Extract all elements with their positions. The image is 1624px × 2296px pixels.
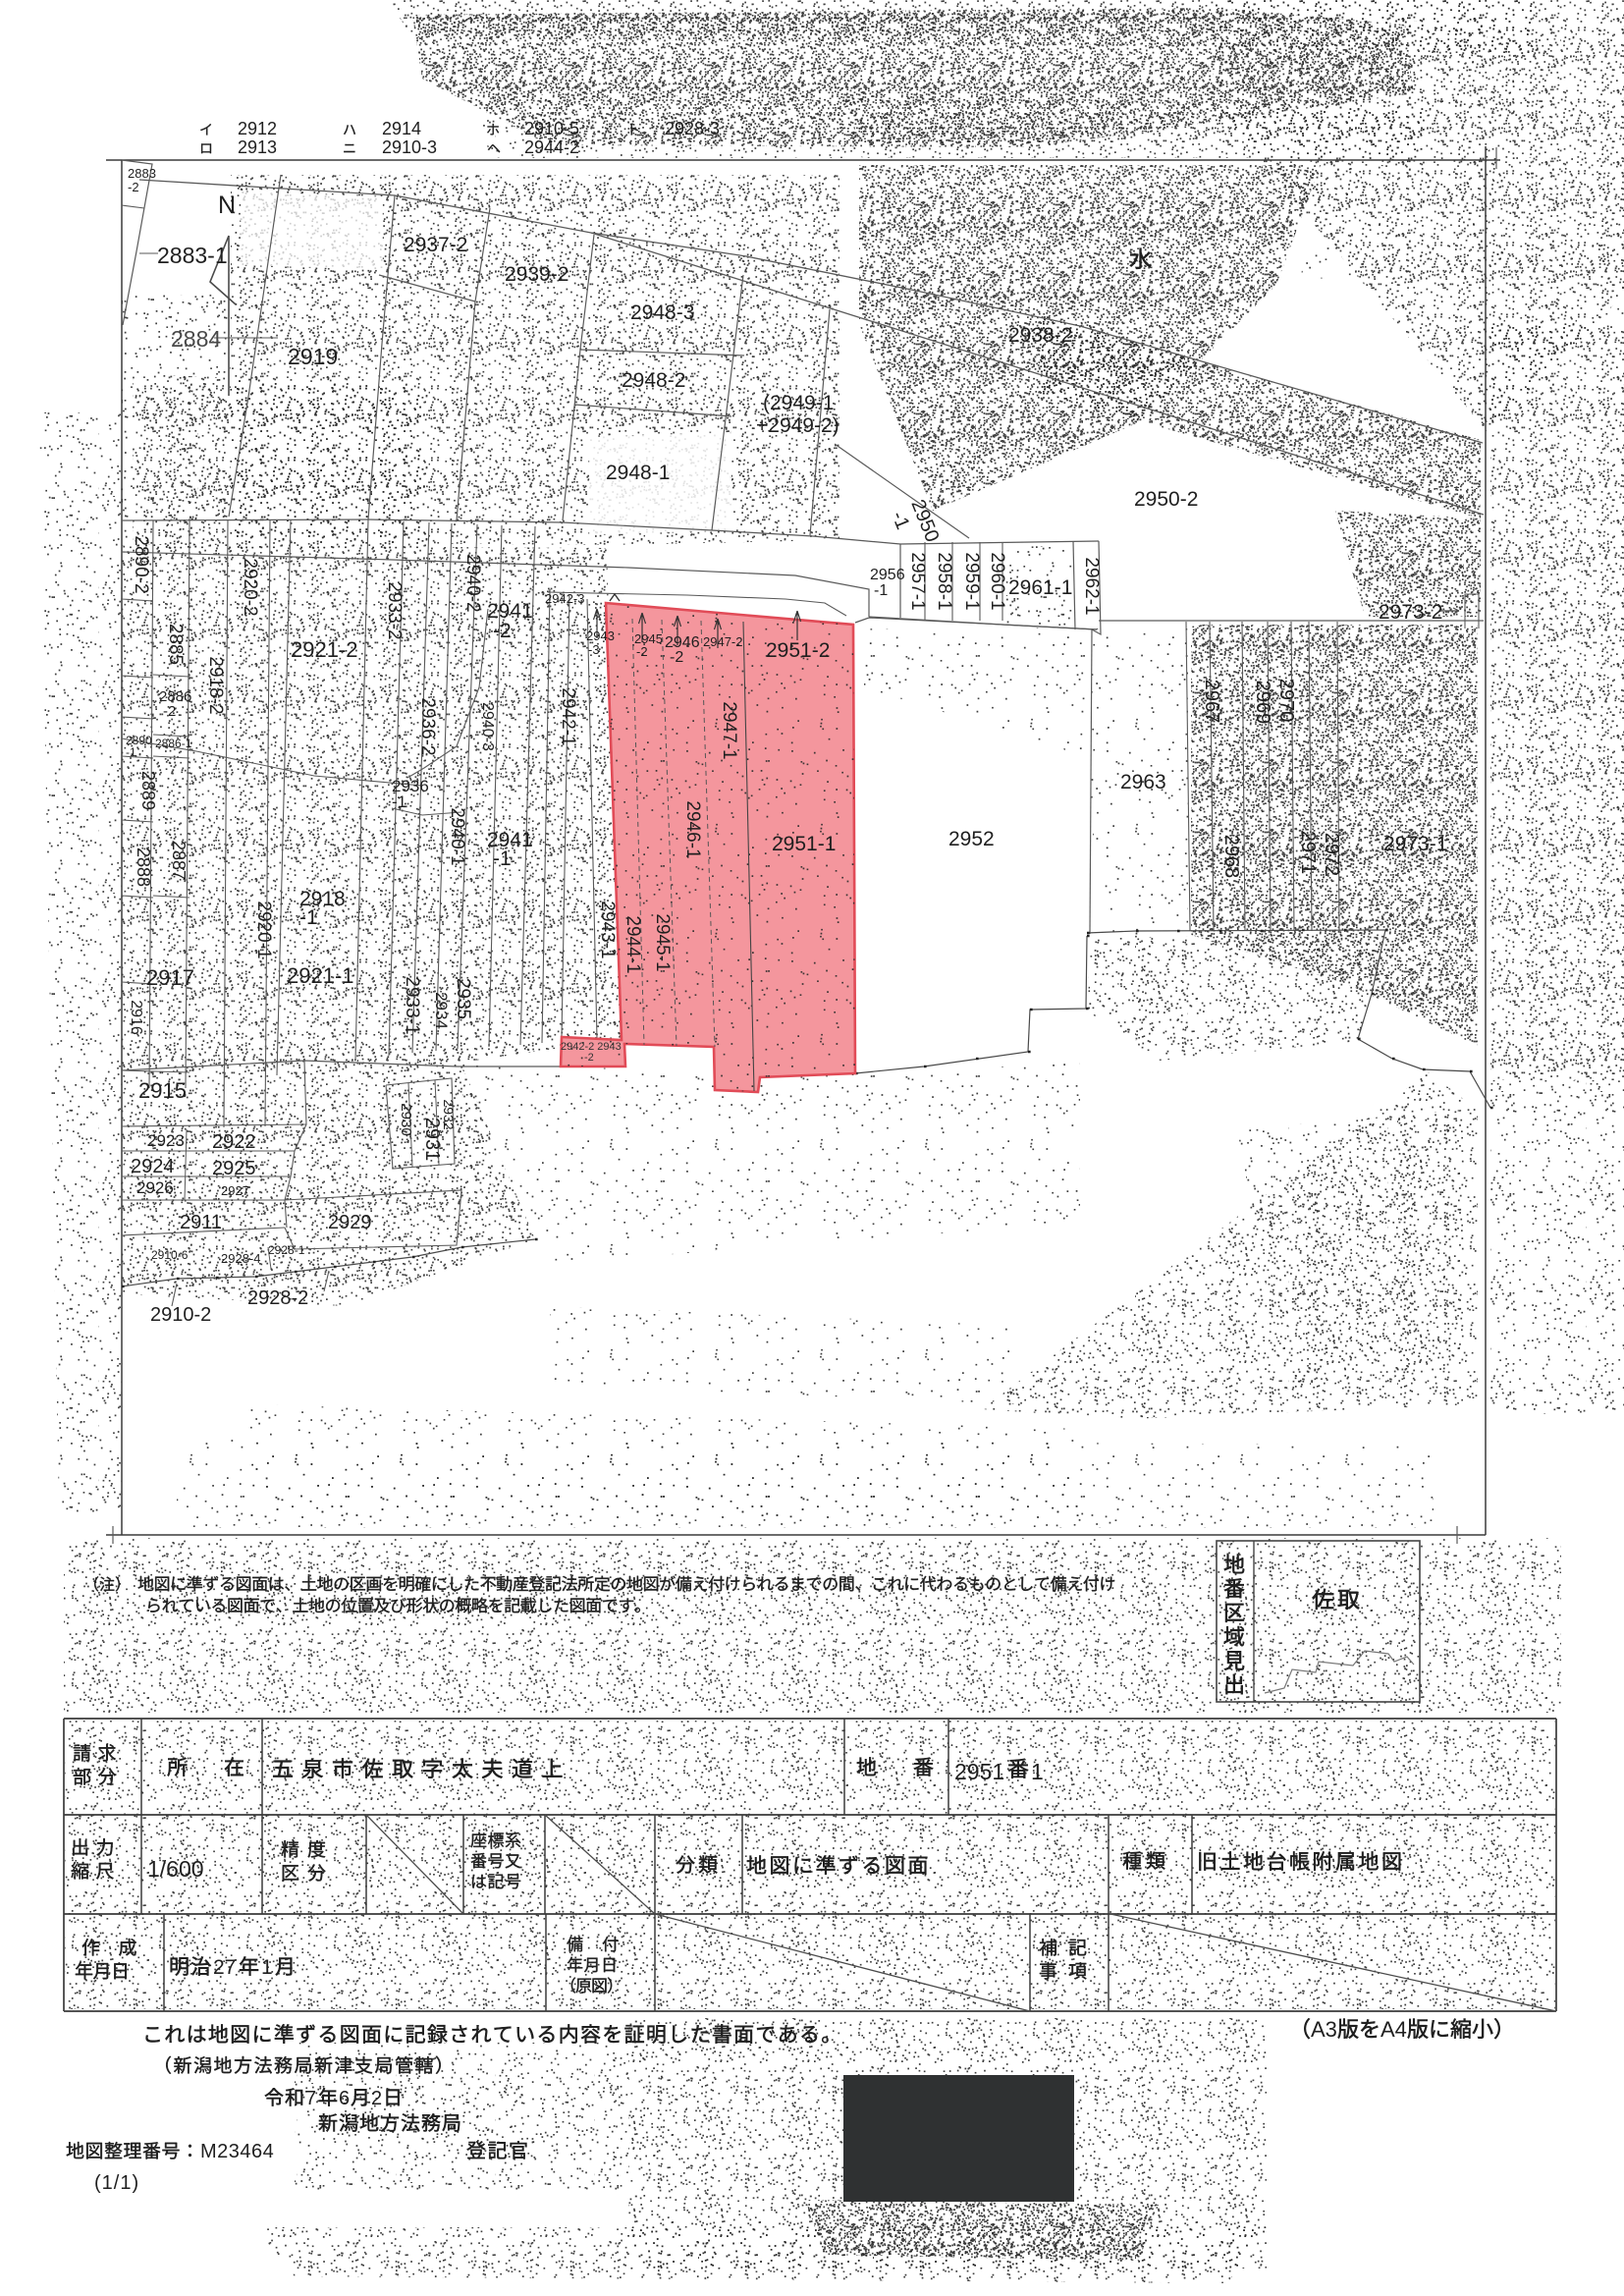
svg-text:2971: 2971 [1297,831,1319,875]
svg-text:2935: 2935 [453,978,473,1019]
svg-text:-1: -1 [126,745,136,759]
svg-text:2922: 2922 [212,1131,256,1153]
svg-text:2962-1: 2962-1 [1081,557,1102,615]
svg-text:2928-4: 2928-4 [221,1251,260,1266]
svg-text:1: 1 [1031,1759,1044,1784]
svg-text:2937-2: 2937-2 [404,234,467,256]
svg-text:2887: 2887 [169,841,189,880]
svg-text:2915: 2915 [138,1078,187,1103]
svg-text:2945-1: 2945-1 [652,913,673,971]
svg-text:2939-2: 2939-2 [505,263,568,286]
svg-text:-2: -2 [670,649,683,666]
svg-text:2973-2: 2973-2 [1379,601,1442,624]
svg-text:2936-2: 2936-2 [417,697,438,755]
svg-text:2951-2: 2951-2 [766,639,830,662]
svg-text:2972: 2972 [1321,833,1342,877]
svg-text:2883-1: 2883-1 [157,243,228,268]
svg-text:2943: 2943 [586,629,615,643]
svg-text:2933-2: 2933-2 [384,581,405,639]
svg-text:2890-2: 2890-2 [131,535,151,593]
svg-text:2969: 2969 [1252,681,1273,725]
svg-text:2973-1: 2973-1 [1383,833,1447,855]
svg-text:2940-3: 2940-3 [479,702,496,751]
svg-text:2888: 2888 [134,847,153,887]
svg-text:2944-2: 2944-2 [524,137,579,157]
svg-text:2947-2: 2947-2 [703,634,742,649]
svg-text:2960-1: 2960-1 [987,552,1007,610]
svg-text:(1/1): (1/1) [94,2172,139,2194]
svg-text:2910-3: 2910-3 [382,137,437,157]
svg-text:2932: 2932 [441,1099,457,1129]
svg-text:2947-1: 2947-1 [719,701,739,759]
svg-text:-2: -2 [493,620,512,642]
svg-text:2942-1: 2942-1 [558,687,578,745]
svg-text:2957-1: 2957-1 [907,552,928,610]
svg-text:A3: A3 [1311,2017,1337,2042]
svg-text:2940-2: 2940-2 [462,554,483,612]
svg-text:1: 1 [261,1956,273,1979]
svg-text:N: N [218,191,236,219]
svg-text:2921-2: 2921-2 [291,637,358,662]
svg-text:2952: 2952 [948,828,995,850]
svg-text:2926: 2926 [136,1178,174,1197]
svg-text:2924: 2924 [131,1156,175,1177]
svg-text:2916: 2916 [128,1000,144,1035]
svg-text:2886-1: 2886-1 [155,737,192,750]
svg-text:2956: 2956 [870,567,905,583]
svg-text:2918-2: 2918-2 [205,656,226,714]
svg-text:27: 27 [213,1956,236,1979]
svg-text:2928-3: 2928-3 [665,119,720,138]
svg-text:2948-3: 2948-3 [630,301,694,324]
svg-text:2943-1: 2943-1 [597,901,618,958]
svg-text:7: 7 [305,2088,316,2109]
svg-text:2930: 2930 [398,1103,414,1135]
svg-text:-1: -1 [299,906,318,929]
svg-text:2931: 2931 [421,1118,443,1162]
svg-text:2948-1: 2948-1 [606,462,670,484]
svg-text:-1: -1 [874,582,888,599]
svg-text:2970: 2970 [1275,679,1297,723]
svg-text:2938-2: 2938-2 [1008,324,1072,347]
svg-text:2944-1: 2944-1 [623,915,643,973]
svg-text:2884: 2884 [171,326,221,352]
svg-text:2951: 2951 [954,1759,1004,1784]
svg-text:2968: 2968 [1220,835,1242,879]
svg-text:+2949-2): +2949-2) [756,414,839,437]
svg-text:2913: 2913 [238,137,277,157]
svg-text:2920-2: 2920-2 [240,558,260,616]
svg-text:2933-1: 2933-1 [402,976,422,1034]
svg-text:-1: -1 [493,847,512,870]
svg-text:2883: 2883 [128,166,156,181]
svg-text:2946-1: 2946-1 [682,800,703,858]
svg-text:2929: 2929 [328,1212,372,1233]
svg-text:2889: 2889 [138,771,158,810]
svg-text:2940-1: 2940-1 [447,807,467,865]
svg-text:2967: 2967 [1201,680,1222,724]
svg-text:2951-1: 2951-1 [772,833,836,855]
svg-text:2959-1: 2959-1 [961,552,982,610]
svg-text:2950-2: 2950-2 [1134,488,1198,511]
svg-text:2919: 2919 [288,344,338,369]
svg-text:-3: -3 [588,642,600,657]
svg-text:2942-3: 2942-3 [545,591,584,606]
svg-text:2948-2: 2948-2 [622,369,685,392]
svg-text:2910-5: 2910-5 [524,119,579,138]
svg-text:2921-1: 2921-1 [287,963,354,988]
svg-text:-1: -1 [392,793,406,811]
svg-text:A4: A4 [1380,2017,1407,2042]
svg-text:-2: -2 [128,180,139,194]
svg-text:2910-6: 2910-6 [151,1248,189,1262]
svg-text:2958-1: 2958-1 [934,552,954,610]
svg-text:2925: 2925 [212,1158,256,1179]
svg-text:-2: -2 [163,703,176,720]
svg-text:-2: -2 [636,644,648,659]
svg-text:2910-2: 2910-2 [150,1304,211,1326]
svg-text:2923: 2923 [147,1131,185,1150]
svg-text:2934: 2934 [432,992,451,1029]
svg-text:2914: 2914 [382,119,421,138]
svg-text:2920-1: 2920-1 [253,901,274,958]
svg-text:-2: -2 [584,1052,594,1064]
svg-text:6: 6 [339,2088,350,2109]
svg-text:(2949-1: (2949-1 [763,392,834,414]
svg-text:2927: 2927 [221,1183,249,1198]
svg-text:2928-2: 2928-2 [247,1287,308,1309]
svg-text:2963: 2963 [1120,771,1166,793]
svg-text:2961-1: 2961-1 [1008,576,1072,599]
svg-text:2928-1: 2928-1 [268,1243,305,1257]
svg-text:2: 2 [371,2088,382,2109]
svg-text:2917: 2917 [146,965,194,990]
svg-text:1/600: 1/600 [147,1856,204,1882]
svg-text:2911: 2911 [180,1212,222,1233]
svg-text:2885: 2885 [165,624,186,665]
svg-text:2912: 2912 [238,119,277,138]
svg-text:M23464: M23464 [200,2141,274,2162]
